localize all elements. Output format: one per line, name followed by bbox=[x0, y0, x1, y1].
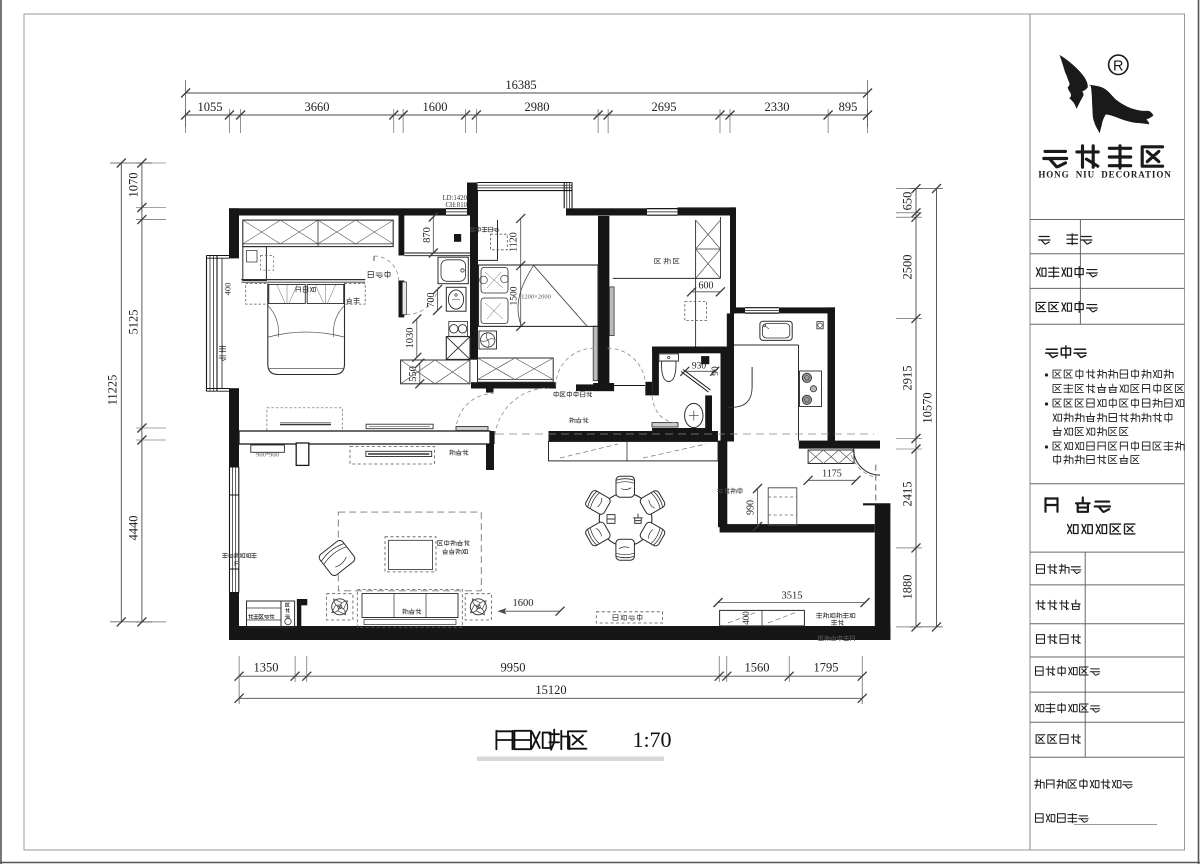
svg-text:600: 600 bbox=[699, 281, 714, 292]
svg-text:2415: 2415 bbox=[901, 482, 915, 507]
svg-text:1600: 1600 bbox=[423, 100, 448, 114]
svg-text:1880: 1880 bbox=[901, 575, 915, 600]
svg-text:4440: 4440 bbox=[126, 516, 140, 541]
svg-text:2980: 2980 bbox=[525, 100, 550, 114]
svg-text:1200×2000: 1200×2000 bbox=[521, 294, 551, 301]
svg-text:870: 870 bbox=[422, 227, 433, 243]
svg-text:2915: 2915 bbox=[901, 366, 915, 391]
svg-text:1070: 1070 bbox=[126, 173, 140, 198]
svg-text:1560: 1560 bbox=[745, 661, 770, 675]
svg-text:650: 650 bbox=[901, 192, 915, 211]
svg-text:990: 990 bbox=[746, 500, 757, 515]
svg-text:2695: 2695 bbox=[652, 100, 677, 114]
svg-text:1055: 1055 bbox=[198, 100, 223, 114]
svg-text:CH:810: CH:810 bbox=[445, 202, 467, 209]
svg-text:90: 90 bbox=[711, 366, 721, 376]
svg-text:15120: 15120 bbox=[535, 683, 566, 697]
svg-text:HONG NIU DECORATION: HONG NIU DECORATION bbox=[1038, 170, 1171, 180]
svg-text:900*900: 900*900 bbox=[256, 452, 279, 459]
svg-text:1600: 1600 bbox=[513, 598, 534, 609]
svg-text:2330: 2330 bbox=[765, 100, 790, 114]
svg-text:895: 895 bbox=[839, 100, 858, 114]
svg-text:5125: 5125 bbox=[126, 310, 140, 335]
svg-text:2500: 2500 bbox=[901, 255, 915, 280]
svg-text:1350: 1350 bbox=[254, 661, 279, 675]
svg-text:LD:1420: LD:1420 bbox=[442, 195, 467, 202]
svg-text:3660: 3660 bbox=[305, 100, 330, 114]
svg-text:R: R bbox=[1113, 58, 1123, 74]
svg-text:10570: 10570 bbox=[921, 392, 935, 423]
svg-text:16385: 16385 bbox=[505, 78, 536, 92]
svg-text:700: 700 bbox=[426, 293, 437, 308]
svg-text:1500: 1500 bbox=[510, 286, 520, 305]
svg-text:1030: 1030 bbox=[405, 328, 416, 349]
svg-text:400: 400 bbox=[222, 283, 232, 296]
svg-text:1120: 1120 bbox=[509, 232, 520, 252]
svg-text:11225: 11225 bbox=[106, 375, 120, 406]
svg-text:3515: 3515 bbox=[782, 591, 803, 602]
svg-text:930: 930 bbox=[692, 362, 707, 372]
svg-text:9950: 9950 bbox=[501, 661, 526, 675]
svg-text:1175: 1175 bbox=[822, 469, 842, 480]
svg-text:1795: 1795 bbox=[814, 661, 839, 675]
svg-text:1:70: 1:70 bbox=[632, 727, 671, 752]
svg-text:400: 400 bbox=[741, 611, 751, 625]
